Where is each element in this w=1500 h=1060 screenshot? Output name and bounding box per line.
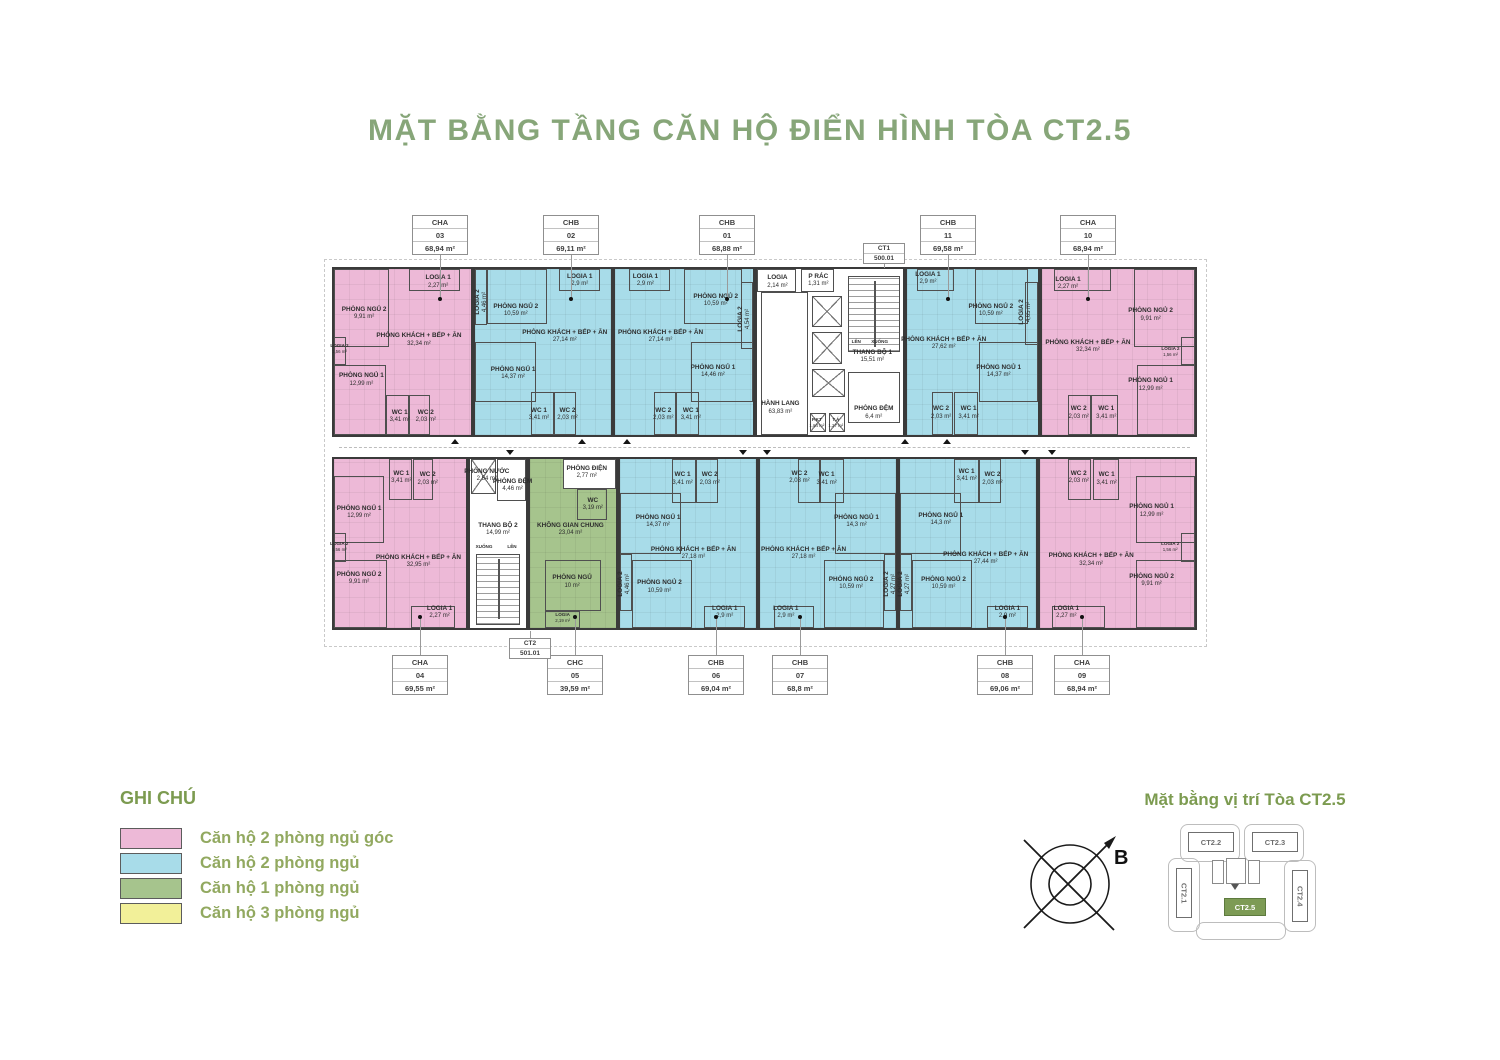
- room-label: P.KT1,84 m²: [809, 418, 824, 430]
- callout-row: 03: [413, 228, 467, 241]
- room-name: PHÒNG NGỦ 2: [342, 306, 387, 314]
- room-area: 4,65 m²: [1026, 299, 1034, 324]
- room-label: WC 13,41 m²: [816, 471, 836, 487]
- room-area: 10,59 m²: [493, 311, 538, 319]
- callout-row: 68,94 m²: [1055, 681, 1109, 694]
- callout-anchor: [573, 615, 577, 619]
- room-name: KHÔNG GIAN CHUNG: [537, 522, 604, 530]
- room-area: 9,91 m²: [342, 314, 387, 322]
- room-label: PHÒNG NGỦ 29,91 m²: [342, 306, 387, 322]
- room-name: WC 1: [672, 471, 692, 479]
- legend-rows: Căn hộ 2 phòng ngủ gócCăn hộ 2 phòng ngủ…: [120, 827, 393, 924]
- callout-row: CHA: [393, 656, 447, 668]
- room-name: WC 2: [789, 470, 809, 478]
- room-name: WC 1: [391, 470, 411, 478]
- room-name: LOGIA 1: [1054, 605, 1079, 613]
- room-area: 2,14 m²: [767, 283, 787, 291]
- room-name: PHÒNG NGỦ 2: [637, 579, 682, 587]
- room-label: WC 13,41 m²: [390, 409, 410, 425]
- callout-row: 68,94 m²: [413, 241, 467, 254]
- room-name: PHÒNG NGỦ 2: [829, 576, 874, 584]
- room-name: PHÒNG NGỦ 1: [337, 505, 382, 513]
- room-name: PHÒNG NGỦ 2: [921, 576, 966, 584]
- room-name: XUỐNG: [476, 544, 493, 550]
- room-label: PHÒNG NGỦ 210,59 m²: [637, 579, 682, 595]
- room-label: WC 22,03 m²: [557, 407, 577, 423]
- unit-11: LOGIA 12,9 m²PHÒNG NGỦ 210,59 m²LOGIA 24…: [905, 267, 1040, 437]
- callout-line: [420, 618, 421, 655]
- room-label: PHÒNG NGỦ 112,99 m²: [339, 372, 384, 388]
- room-name: PHÒNG ĐIỆN: [567, 464, 607, 472]
- room-label: XUỐNG: [476, 544, 493, 550]
- room-area: 14,37 m²: [976, 372, 1021, 380]
- room-name: PHÒNG NGỦ 2: [693, 292, 738, 300]
- room-name: PHÒNG KHÁCH + BẾP + ĂN: [376, 554, 461, 562]
- room-area: 10,59 m²: [693, 301, 738, 309]
- minimap-building-CT2.1: CT2.1: [1176, 868, 1192, 918]
- shaft: [812, 332, 841, 364]
- room-name: PHÒNG KHÁCH + BẾP + ĂN: [651, 546, 736, 554]
- room-label: LOGIA 12,27 m²: [1055, 276, 1080, 292]
- door-marker: [506, 450, 514, 455]
- room-label: LÊN: [852, 339, 861, 345]
- room-label: LOGIA 24,65 m²: [1018, 299, 1034, 324]
- room-area: 2,03 m²: [653, 415, 673, 423]
- room-name: PHÒNG KHÁCH + BẾP + ĂN: [943, 551, 1028, 559]
- room-area: 14,37 m²: [636, 522, 681, 530]
- room-label: LOGIA 21,56 m²: [1161, 346, 1179, 358]
- room-label: LOGIA 12,27 m²: [427, 605, 452, 621]
- room-name: PHÒNG KHÁCH + BẾP + ĂN: [618, 329, 703, 337]
- room-label: LOGIA 24,46 m²: [617, 571, 633, 596]
- room-area: 3,41 m²: [681, 415, 701, 423]
- room-name: THANG BỘ 2: [478, 522, 517, 530]
- room-wall: [912, 560, 972, 628]
- room-label: PHÒNG KHÁCH + BẾP + ĂN27,44 m²: [943, 551, 1028, 567]
- unit-callout-10: CHA1068,94 m²: [1060, 215, 1116, 255]
- room-label: THANG BỘ 214,99 m²: [478, 522, 517, 538]
- room-label: LOGIA 21,56 m²: [330, 343, 348, 355]
- callout-row: 68,8 m²: [773, 681, 827, 694]
- unit-callout-07: CHB0768,8 m²: [772, 655, 828, 695]
- room-area: 15,51 m²: [853, 357, 892, 365]
- callout-row: 69,04 m²: [689, 681, 743, 694]
- room-name: LOGIA 2: [474, 290, 482, 315]
- room-label: WC 13,41 m²: [958, 405, 978, 421]
- room-label: WC3,19 m²: [583, 497, 603, 513]
- room-name: LOGIA 1: [995, 605, 1020, 613]
- room-label: WC 13,41 m²: [529, 407, 549, 423]
- callout-row: 01: [700, 228, 754, 241]
- room-name: PHÒNG KHÁCH + BẾP + ĂN: [1045, 339, 1130, 347]
- unit-callout-03: CHA0368,94 m²: [412, 215, 468, 255]
- room-wall: [1136, 560, 1195, 628]
- room-name: PHÒNG KHÁCH + BẾP + ĂN: [1049, 552, 1134, 560]
- unit-04: WC 13,41 m²WC 22,03 m²PHÒNG NGỦ 112,99 m…: [332, 457, 468, 630]
- room-label: WC 22,03 m²: [1069, 470, 1089, 486]
- callout-row: 08: [978, 668, 1032, 681]
- room-name: LÊN: [852, 339, 861, 345]
- compass-icon: B: [1012, 818, 1132, 938]
- room-name: PHÒNG NGỦ 1: [918, 512, 963, 520]
- room-label: PHÒNG NGỦ 29,91 m²: [1129, 573, 1174, 589]
- callout-row: CHA: [1061, 216, 1115, 228]
- callout-row: 09: [1055, 668, 1109, 681]
- room-label: PHÒNG NGỦ 112,99 m²: [1128, 377, 1173, 393]
- compass-north-label: B: [1114, 847, 1128, 869]
- callout-row: CHB: [921, 216, 975, 228]
- callout-line: [1082, 618, 1083, 655]
- legend-item: Căn hộ 2 phòng ngủ: [120, 852, 393, 874]
- stair-rail: [498, 559, 500, 620]
- room-area: 2,03 m²: [982, 480, 1002, 488]
- room-area: 2,9 m²: [773, 613, 798, 621]
- shaft: [812, 369, 844, 397]
- room-label: LOGIA 12,9 m²: [995, 605, 1020, 621]
- room-area: 27,18 m²: [761, 554, 846, 562]
- room-label: WC 13,41 m²: [956, 468, 976, 484]
- unit-callout-09: CHA0968,94 m²: [1054, 655, 1110, 695]
- room-area: 14,46 m²: [691, 372, 736, 380]
- legend-swatch-pink: [120, 828, 182, 849]
- room-name: LOGIA 2: [882, 571, 890, 596]
- room-name: WC 1: [529, 407, 549, 415]
- room-label: WC 22,03 m²: [931, 405, 951, 421]
- room-label: THANG BỘ 115,51 m²: [853, 349, 892, 365]
- room-area: 2,03 m²: [557, 415, 577, 423]
- room-label: LOGIA 12,27 m²: [1054, 605, 1079, 621]
- room-area: 2,03 m²: [1069, 478, 1089, 486]
- floor-plan-page: MẶT BẰNG TẦNG CĂN HỘ ĐIỂN HÌNH TÒA CT2.5…: [0, 0, 1500, 1060]
- room-label: PHÒNG KHÁCH + BẾP + ĂN27,14 m²: [522, 329, 607, 345]
- room-label: WC 22,03 m²: [418, 471, 438, 487]
- room-label: WC 13,41 m²: [681, 407, 701, 423]
- room-wall: [1181, 533, 1195, 562]
- unit-core-bottom: PHÒNG NƯỚC2,84 m²PHÒNG ĐỆM4,46 m²THANG B…: [468, 457, 528, 630]
- room-name: PHÒNG NGỦ 1: [1128, 377, 1173, 385]
- room-label: WC 13,41 m²: [672, 471, 692, 487]
- room-name: LOGIA 1: [427, 605, 452, 613]
- callout-line: [575, 618, 576, 655]
- room-name: WC 2: [416, 409, 436, 417]
- room-name: PHÒNG ĐỆM: [854, 405, 893, 413]
- room-label: PHÒNG NGỦ 210,59 m²: [921, 576, 966, 592]
- room-label: WC 22,03 m²: [982, 471, 1002, 487]
- unit-08: WC 13,41 m²WC 22,03 m²PHÒNG NGỦ 114,3 m²…: [898, 457, 1038, 630]
- minimap-building-CT2.4: CT2.4: [1292, 870, 1308, 922]
- callout-row: CHB: [544, 216, 598, 228]
- room-label: WC 22,03 m²: [653, 407, 673, 423]
- shaft: [812, 296, 841, 328]
- room-area: 2,27 m²: [1055, 284, 1080, 292]
- room-name: WC 2: [557, 407, 577, 415]
- legend-label: Căn hộ 2 phòng ngủ góc: [200, 829, 393, 848]
- room-label: WC 13,41 m²: [1096, 471, 1116, 487]
- room-area: 32,34 m²: [1049, 561, 1134, 569]
- room-name: PHÒNG NGỦ 1: [339, 372, 384, 380]
- room-name: PHÒNG NGỦ 1: [834, 513, 879, 521]
- location-map-title: Mặt bằng vị trí Tòa CT2.5: [1130, 790, 1360, 810]
- room-name: PHÒNG NGỦ 2: [493, 302, 538, 310]
- room-area: 2,27 m²: [425, 283, 450, 291]
- site-podium: [1212, 860, 1224, 884]
- callout-row: 04: [393, 668, 447, 681]
- callout-anchor: [798, 615, 802, 619]
- room-name: PHÒNG NGỦ 2: [1128, 307, 1173, 315]
- unit-07: WC 22,03 m²WC 13,41 m²PHÒNG NGỦ 114,3 m²…: [758, 457, 898, 630]
- door-marker: [1048, 450, 1056, 455]
- room-area: 12,99 m²: [337, 513, 382, 521]
- room-label: WC 22,03 m²: [700, 471, 720, 487]
- room-name: WC 2: [418, 471, 438, 479]
- room-label: PHÒNG NGỦ 29,91 m²: [1128, 307, 1173, 323]
- room-area: 2,77 m²: [567, 473, 607, 481]
- legend-swatch-green: [120, 878, 182, 899]
- room-name: WC 2: [700, 471, 720, 479]
- room-label: LOGIA 12,9 m²: [915, 271, 940, 287]
- room-name: LOGIA: [767, 274, 787, 282]
- callout-row: 68,94 m²: [1061, 241, 1115, 254]
- callout-row: CHB: [773, 656, 827, 668]
- room-area: 6,4 m²: [854, 414, 893, 422]
- room-area: 2,03 m²: [418, 480, 438, 488]
- room-area: 1,84 m²: [809, 424, 824, 430]
- floor-plan: LOGIA 12,27 m²PHÒNG NGỦ 29,91 m²LOGIA 21…: [0, 0, 1500, 760]
- room-label: PHÒNG KHÁCH + BẾP + ĂN27,14 m²: [618, 329, 703, 345]
- room-name: LOGIA 2: [1018, 299, 1026, 324]
- room-area: 1,31 m²: [808, 281, 828, 289]
- unit-callout-05: CHC0539,59 m²: [547, 655, 603, 695]
- minimap-building-CT2.2: CT2.2: [1188, 832, 1234, 852]
- room-label: LOGIA 12,9 m²: [773, 605, 798, 621]
- room-area: 12,99 m²: [339, 380, 384, 388]
- room-label: LOGIA 24,54 m²: [737, 306, 753, 331]
- door-marker: [623, 439, 631, 444]
- room-label: PHÒNG KHÁCH + BẾP + ĂN32,34 m²: [1049, 552, 1134, 568]
- room-label: PHÒNG NGỦ 210,59 m²: [829, 576, 874, 592]
- callout-row: 06: [689, 668, 743, 681]
- room-name: LÊN: [507, 544, 516, 550]
- room-area: 14,37 m²: [491, 374, 536, 382]
- callout-row: CHB: [700, 216, 754, 228]
- room-name: LOGIA 1: [712, 605, 737, 613]
- room-label: PHÒNG ĐIỆN2,77 m²: [567, 464, 607, 480]
- room-label: PHÒNG NGỦ 29,91 m²: [337, 571, 382, 587]
- room-label: PHÒNG NGỦ 210,59 m²: [968, 302, 1013, 318]
- callout-row: 02: [544, 228, 598, 241]
- unit-callout-02: CHB0269,11 m²: [543, 215, 599, 255]
- room-area: 1,56 m²: [330, 547, 348, 553]
- callout-anchor: [946, 297, 950, 301]
- room-label: PHÒNG KHÁCH + BẾP + ĂN32,34 m²: [1045, 339, 1130, 355]
- room-label: PHÒNG KHÁCH + BẾP + ĂN27,18 m²: [761, 546, 846, 562]
- callout-row: 11: [921, 228, 975, 241]
- room-area: 3,41 m²: [529, 415, 549, 423]
- callout-row: CHA: [1055, 656, 1109, 668]
- callout-row: 68,88 m²: [700, 241, 754, 254]
- callout-row: CHA: [413, 216, 467, 228]
- room-area: 10,59 m²: [968, 311, 1013, 319]
- room-label: WC 13,41 m²: [1096, 405, 1116, 421]
- room-name: P RÁC: [808, 273, 828, 281]
- legend: GHI CHÚ Căn hộ 2 phòng ngủ gócCăn hộ 2 p…: [120, 788, 393, 927]
- callout-anchor: [1086, 297, 1090, 301]
- legend-label: Căn hộ 3 phòng ngủ: [200, 904, 359, 923]
- room-name: PHÒNG NGỦ 1: [1129, 503, 1174, 511]
- room-area: 2,03 m²: [789, 478, 809, 486]
- room-name: PHÒNG NGỦ 1: [491, 366, 536, 374]
- room-label: PHÒNG NGỦ 114,3 m²: [834, 513, 879, 529]
- site-marker: [1231, 884, 1239, 890]
- door-marker: [763, 450, 771, 455]
- room-label: PHÒNG KHÁCH + BẾP + ĂN27,18 m²: [651, 546, 736, 562]
- door-marker: [739, 450, 747, 455]
- room-label: LOGIA 21,56 m²: [1161, 541, 1179, 553]
- callout-anchor: [1080, 615, 1084, 619]
- door-marker: [943, 439, 951, 444]
- room-name: PHÒNG NGỦ 2: [1129, 573, 1174, 581]
- callout-row: CHC: [548, 656, 602, 668]
- room-name: PHÒNG NƯỚC: [464, 468, 509, 476]
- room-name: WC 2: [653, 407, 673, 415]
- room-area: 12,99 m²: [1129, 512, 1174, 520]
- room-area: 14,3 m²: [834, 522, 879, 530]
- room-name: WC 1: [681, 407, 701, 415]
- room-label: PHÒNG NGỦ 210,59 m²: [693, 292, 738, 308]
- callout-row: 05: [548, 668, 602, 681]
- room-area: 1,27 m²: [828, 424, 843, 430]
- unit-callout-01: CHB0168,88 m²: [699, 215, 755, 255]
- room-name: PHÒNG KHÁCH + BẾP + ĂN: [901, 336, 986, 344]
- room-label: PHÒNG NGỦ 114,37 m²: [636, 513, 681, 529]
- room-area: 4,46 m²: [493, 486, 532, 494]
- unit-06: WC 13,41 m²WC 22,03 m²PHÒNG NGỦ 114,37 m…: [618, 457, 758, 630]
- room-area: 27,44 m²: [943, 559, 1028, 567]
- location-minimap: CT2.2CT2.3CT2.1CT2.4CT2.5: [1168, 824, 1318, 942]
- room-area: 4,46 m²: [482, 290, 490, 315]
- callout-row: CHB: [689, 656, 743, 668]
- callout-row: 500.01: [864, 253, 904, 263]
- callout-anchor: [438, 297, 442, 301]
- room-label: WC 22,03 m²: [1069, 405, 1089, 421]
- room-area: 2,27 m²: [427, 613, 452, 621]
- room-name: LOGIA 1: [773, 605, 798, 613]
- corridor-centerline: [339, 447, 1190, 448]
- room-area: 12,99 m²: [1128, 385, 1173, 393]
- unit-09: WC 22,03 m²WC 13,41 m²PHÒNG NGỦ 112,99 m…: [1038, 457, 1197, 630]
- legend-label: Căn hộ 2 phòng ngủ: [200, 854, 359, 873]
- room-area: 23,04 m²: [537, 530, 604, 538]
- room-area: 3,41 m²: [390, 417, 410, 425]
- room-label: HÀNH LANG63,83 m²: [761, 400, 799, 416]
- room-name: PHÒNG KHÁCH + BẾP + ĂN: [761, 546, 846, 554]
- room-name: PHÒNG KHÁCH + BẾP + ĂN: [522, 329, 607, 337]
- room-area: 27,18 m²: [651, 554, 736, 562]
- room-label: WC 13,41 m²: [391, 470, 411, 486]
- callout-row: CT1: [864, 244, 904, 253]
- room-label: PHÒNG NGỦ 210,59 m²: [493, 302, 538, 318]
- room-label: LOGIA 21,56 m²: [330, 541, 348, 553]
- room-area: 14,99 m²: [478, 530, 517, 538]
- room-label: PHÒNG NGỦ 114,3 m²: [918, 512, 963, 528]
- room-area: 1,56 m²: [330, 349, 348, 355]
- unit-core-top: LOGIA2,14 m²P RÁC1,31 m²LÊNXUỐNGTHANG BỘ…: [755, 267, 905, 437]
- room-name: THANG BỘ 1: [853, 349, 892, 357]
- room-name: PHÒNG NGỦ: [552, 574, 591, 582]
- room-label: PHÒNG KHÁCH + BẾP + ĂN32,95 m²: [376, 554, 461, 570]
- room-area: 9,91 m²: [1129, 581, 1174, 589]
- callout-line: [727, 253, 728, 298]
- room-area: 9,91 m²: [337, 579, 382, 587]
- room-label: PHÒNG NGỦ 114,37 m²: [491, 366, 536, 382]
- room-label: PHÒNG NGỦ 112,99 m²: [1129, 503, 1174, 519]
- room-label: P RÁC1,31 m²: [808, 273, 828, 289]
- callout-row: CHB: [978, 656, 1032, 668]
- room-area: 10,59 m²: [637, 588, 682, 596]
- room-area: 27,14 m²: [522, 337, 607, 345]
- room-name: PHÒNG NGỦ 1: [691, 364, 736, 372]
- room-area: 32,34 m²: [376, 341, 461, 349]
- minimap-building-CT2.3: CT2.3: [1252, 832, 1298, 852]
- room-area: 27,14 m²: [618, 337, 703, 345]
- room-name: PHÒNG NGỦ 2: [337, 571, 382, 579]
- room-name: PHÒNG NGỦ 2: [968, 302, 1013, 310]
- room-area: 1,56 m²: [1161, 547, 1179, 553]
- callout-anchor: [1003, 615, 1007, 619]
- room-wall: [1137, 365, 1195, 435]
- unit-callout-CT2: CT2501.01: [509, 638, 551, 659]
- room-area: 3,41 m²: [1096, 480, 1116, 488]
- room-name: LOGIA 1: [1055, 276, 1080, 284]
- legend-swatch-yellow: [120, 903, 182, 924]
- room-name: WC 2: [931, 405, 951, 413]
- callout-row: CT2: [510, 639, 550, 648]
- room-name: WC 1: [1096, 471, 1116, 479]
- room-label: PHÒNG ĐỆM4,46 m²: [493, 478, 532, 494]
- room-area: 3,41 m²: [391, 478, 411, 486]
- room-area: 2,19 m²: [555, 618, 570, 624]
- legend-title: GHI CHÚ: [120, 788, 393, 809]
- callout-row: 07: [773, 668, 827, 681]
- room-name: WC 1: [956, 468, 976, 476]
- callout-row: 10: [1061, 228, 1115, 241]
- room-label: PHÒNG ĐỆM6,4 m²: [854, 405, 893, 421]
- room-name: LOGIA 2: [737, 306, 745, 331]
- room-label: WC 22,03 m²: [789, 470, 809, 486]
- room-label: PHÒNG NGỦ10 m²: [552, 574, 591, 590]
- room-name: LOGIA 1: [633, 273, 658, 281]
- room-name: WC 2: [1069, 470, 1089, 478]
- room-area: 2,9 m²: [995, 613, 1020, 621]
- room-name: XUỐNG: [871, 339, 888, 345]
- room-area: 2,03 m²: [700, 480, 720, 488]
- callout-line: [571, 253, 572, 298]
- callout-line: [800, 618, 801, 655]
- callout-row: 69,06 m²: [978, 681, 1032, 694]
- room-name: HÀNH LANG: [761, 400, 799, 408]
- callout-line: [948, 253, 949, 298]
- room-label: KHÔNG GIAN CHUNG23,04 m²: [537, 522, 604, 538]
- room-wall: [824, 560, 884, 628]
- room-area: 2,27 m²: [1054, 613, 1079, 621]
- site-podium: [1226, 858, 1246, 884]
- room-area: 9,91 m²: [1128, 316, 1173, 324]
- room-area: 2,03 m²: [1069, 414, 1089, 422]
- room-area: 14,3 m²: [918, 520, 963, 528]
- room-area: 3,41 m²: [958, 414, 978, 422]
- door-marker: [901, 439, 909, 444]
- minimap-building-CT2.5: CT2.5: [1224, 898, 1266, 916]
